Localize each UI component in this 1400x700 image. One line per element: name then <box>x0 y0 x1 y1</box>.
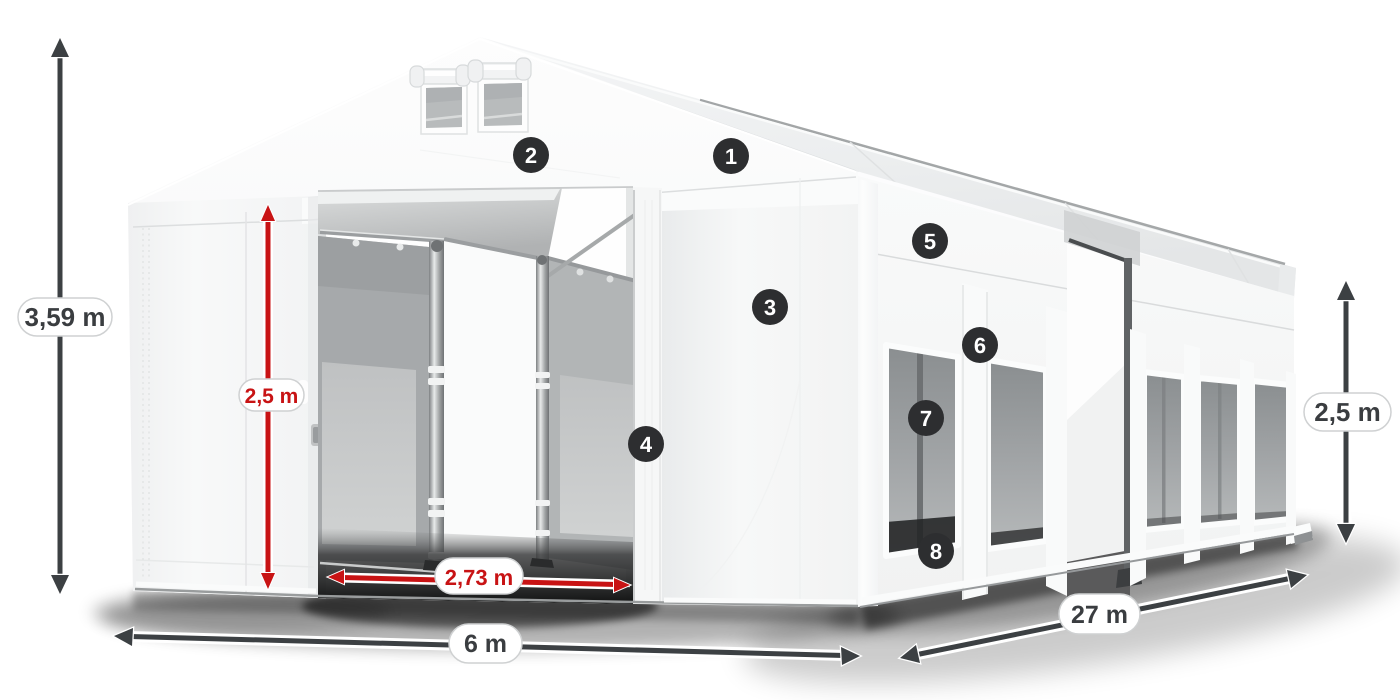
svg-text:5: 5 <box>924 229 936 254</box>
svg-text:7: 7 <box>920 406 932 431</box>
svg-text:1: 1 <box>725 144 737 169</box>
svg-text:2: 2 <box>525 143 537 168</box>
svg-text:2,5 m: 2,5 m <box>245 385 299 408</box>
svg-text:2,73 m: 2,73 m <box>445 565 514 590</box>
svg-text:3,59 m: 3,59 m <box>25 302 106 332</box>
svg-text:8: 8 <box>930 539 942 564</box>
svg-text:27 m: 27 m <box>1071 601 1128 629</box>
svg-text:4: 4 <box>640 432 653 457</box>
svg-text:6 m: 6 m <box>464 630 507 658</box>
svg-text:2,5 m: 2,5 m <box>1314 397 1381 427</box>
svg-text:6: 6 <box>974 333 986 358</box>
svg-text:3: 3 <box>764 295 776 320</box>
